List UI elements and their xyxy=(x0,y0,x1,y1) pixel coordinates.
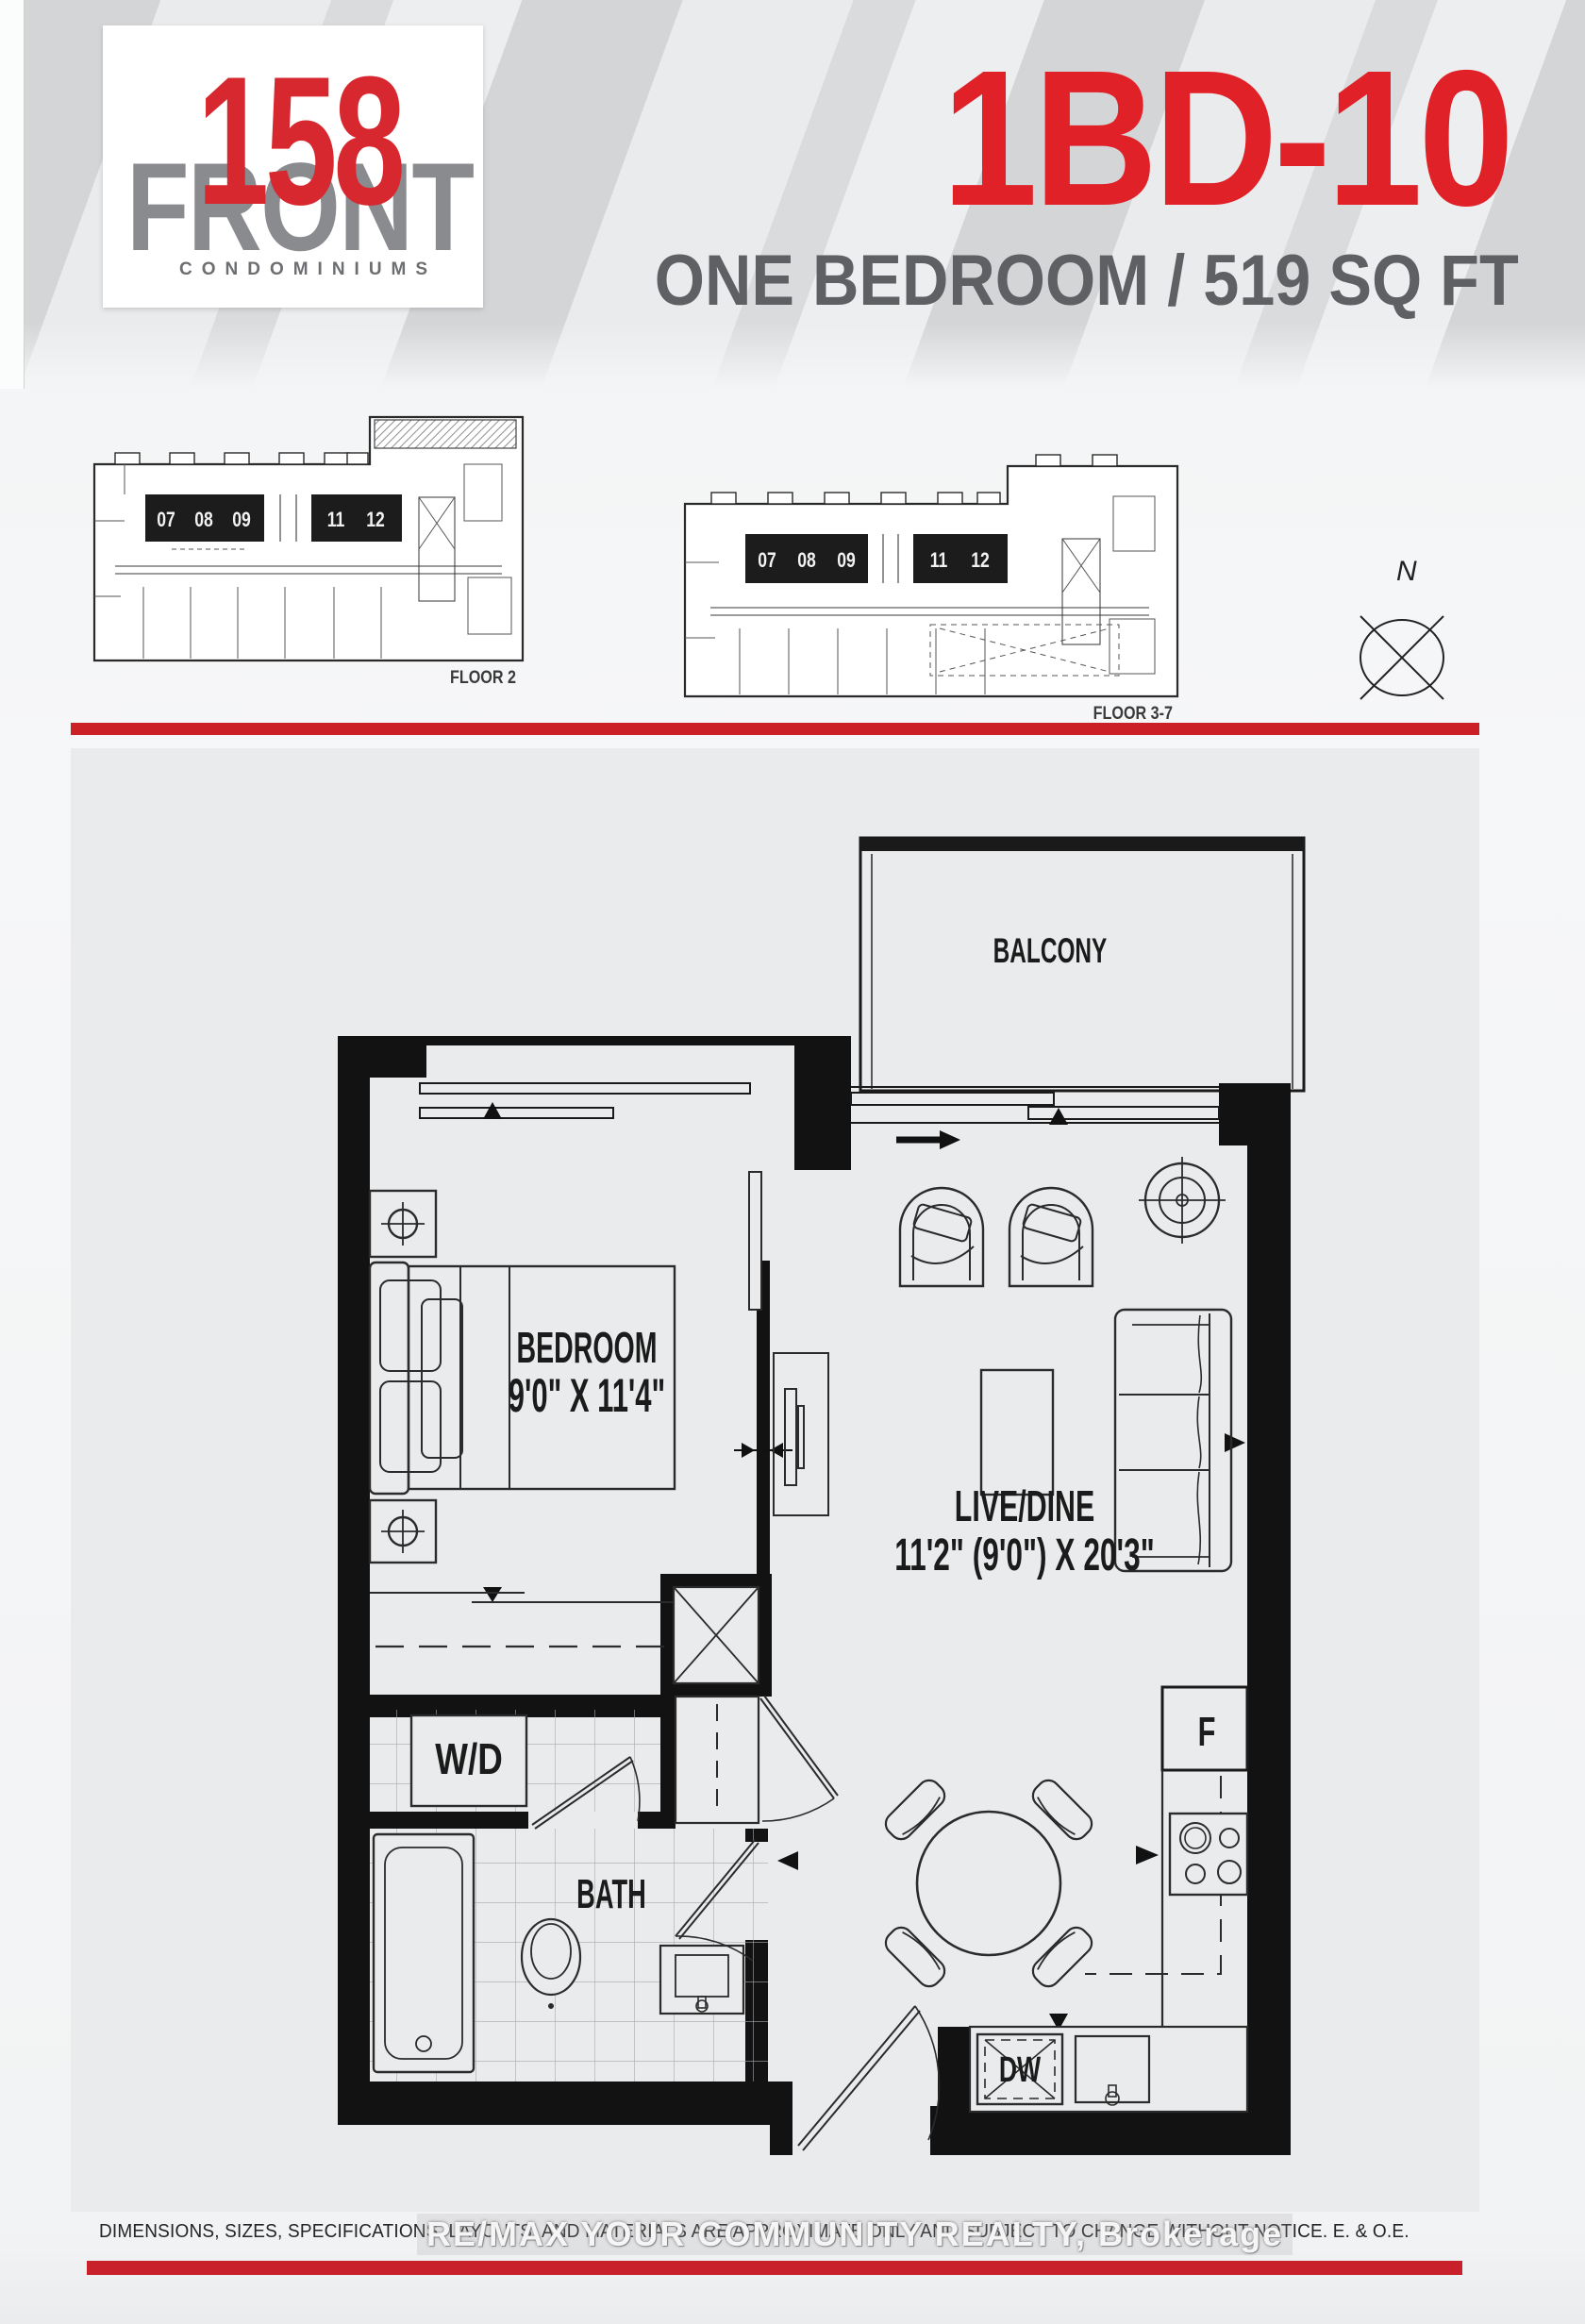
fridge-label: F xyxy=(1198,1710,1216,1756)
unit-09: 09 xyxy=(837,549,856,572)
washer-dryer-label: W/D xyxy=(435,1734,503,1783)
armchair xyxy=(1009,1188,1093,1286)
media-unit xyxy=(774,1353,828,1515)
rightwall-marker-icon xyxy=(1225,1433,1245,1452)
sliding-door-panel xyxy=(749,1172,761,1310)
slider-marker-icon xyxy=(1049,1108,1068,1125)
key-plan-floor-3-7: 07 08 09 11 12 FLOOR 3-7 xyxy=(677,440,1220,725)
unit-08: 08 xyxy=(194,509,213,531)
dining-chair xyxy=(881,1776,949,1844)
unit-11: 11 xyxy=(930,549,948,572)
dining-chair xyxy=(1028,1776,1096,1844)
wall-laundry-stub xyxy=(638,1812,676,1829)
wall-pier xyxy=(794,1036,851,1170)
bathroom: BATH xyxy=(370,1829,768,2082)
unit-07: 07 xyxy=(758,549,776,572)
laundry: W/D xyxy=(370,1710,660,1829)
plan-code-title: 1BD-10 xyxy=(942,42,1510,235)
slide-direction-arrow-icon xyxy=(940,1130,960,1149)
wall-right xyxy=(1247,1083,1291,2155)
dining-chair xyxy=(881,1923,949,1991)
floor-plan: BALCONY xyxy=(71,748,1479,2212)
roof-hatch xyxy=(375,420,516,448)
entry-door-swing xyxy=(915,2006,939,2140)
logo-tagline: CONDOMINIUMS xyxy=(179,259,437,280)
bedroom-window xyxy=(420,1083,750,1118)
logo: FRONT 158 CONDOMINIUMS xyxy=(103,25,483,308)
highlight-units-11-12 xyxy=(913,534,1008,583)
logo-number-text: 158 xyxy=(197,50,402,233)
wall-bottom-step xyxy=(770,2082,792,2155)
dining-table xyxy=(917,1812,1060,1955)
compass-n-label: N xyxy=(1396,556,1417,587)
brokerage-watermark: RE/MAX YOUR COMMUNITY REALTY, Brokerage xyxy=(417,2214,1293,2255)
dining-set xyxy=(881,1776,1096,1991)
red-bottom-bar xyxy=(87,2261,1462,2275)
compass-icon xyxy=(1360,616,1443,699)
bedroom-dims: 9'0" X 11'4" xyxy=(509,1368,665,1421)
closet-door-swing xyxy=(762,1798,834,1821)
key-plan-label: FLOOR 3-7 xyxy=(1093,703,1173,724)
bath-label: BATH xyxy=(576,1870,646,1916)
toilet xyxy=(522,1919,580,1995)
page-edge-strip xyxy=(0,0,25,389)
key-plan-label: FLOOR 2 xyxy=(450,667,516,688)
dining-chair xyxy=(1028,1923,1096,1991)
plan-subtitle: ONE BEDROOM / 519 SQ FT xyxy=(655,245,1519,317)
wall-bottom-right xyxy=(930,2106,1291,2155)
kitchen: F DW xyxy=(970,1687,1247,2112)
live-dine-label: LIVE/DINE xyxy=(955,1483,1094,1531)
wall-top-strip xyxy=(426,1036,794,1045)
unit-08: 08 xyxy=(797,549,816,572)
closet-marker-icon xyxy=(483,1587,502,1602)
compass: N xyxy=(1347,552,1470,731)
unit-09: 09 xyxy=(232,509,251,531)
foyer-marker-icon xyxy=(777,1851,798,1870)
balcony-notches xyxy=(115,453,368,464)
wall-bottom-left xyxy=(338,2082,772,2125)
cooktop xyxy=(1170,1814,1247,1895)
dishwasher: DW xyxy=(977,2034,1062,2104)
kitchen-marker-icon xyxy=(1136,1846,1159,1864)
balcony-label: BALCONY xyxy=(993,931,1108,970)
highlight-units-11-12 xyxy=(311,494,402,542)
live-dine-dims: 11'2" (9'0") X 20'3" xyxy=(894,1529,1154,1580)
balcony-slider xyxy=(851,1087,1219,1123)
dishwasher-label: DW xyxy=(999,2048,1041,2089)
entry-door xyxy=(798,2006,939,2150)
unit-07: 07 xyxy=(157,509,175,531)
bedroom-label: BEDROOM xyxy=(517,1324,658,1373)
balcony: BALCONY xyxy=(860,838,1304,1091)
red-separator xyxy=(71,723,1479,735)
center-closets xyxy=(674,1172,838,1823)
armchair xyxy=(900,1188,983,1286)
wall-kitchen-stub xyxy=(938,2027,970,2112)
unit-12: 12 xyxy=(971,549,990,572)
unit-11: 11 xyxy=(327,509,345,531)
coffee-table xyxy=(981,1370,1053,1495)
key-plan-floor-2: 07 08 09 11 12 FLOOR 2 xyxy=(87,408,540,691)
wall-left xyxy=(338,1036,370,2125)
wall-laundry xyxy=(370,1812,528,1829)
unit-12: 12 xyxy=(366,509,385,531)
side-table xyxy=(1139,1157,1226,1244)
window-marker-icon xyxy=(483,1102,502,1119)
